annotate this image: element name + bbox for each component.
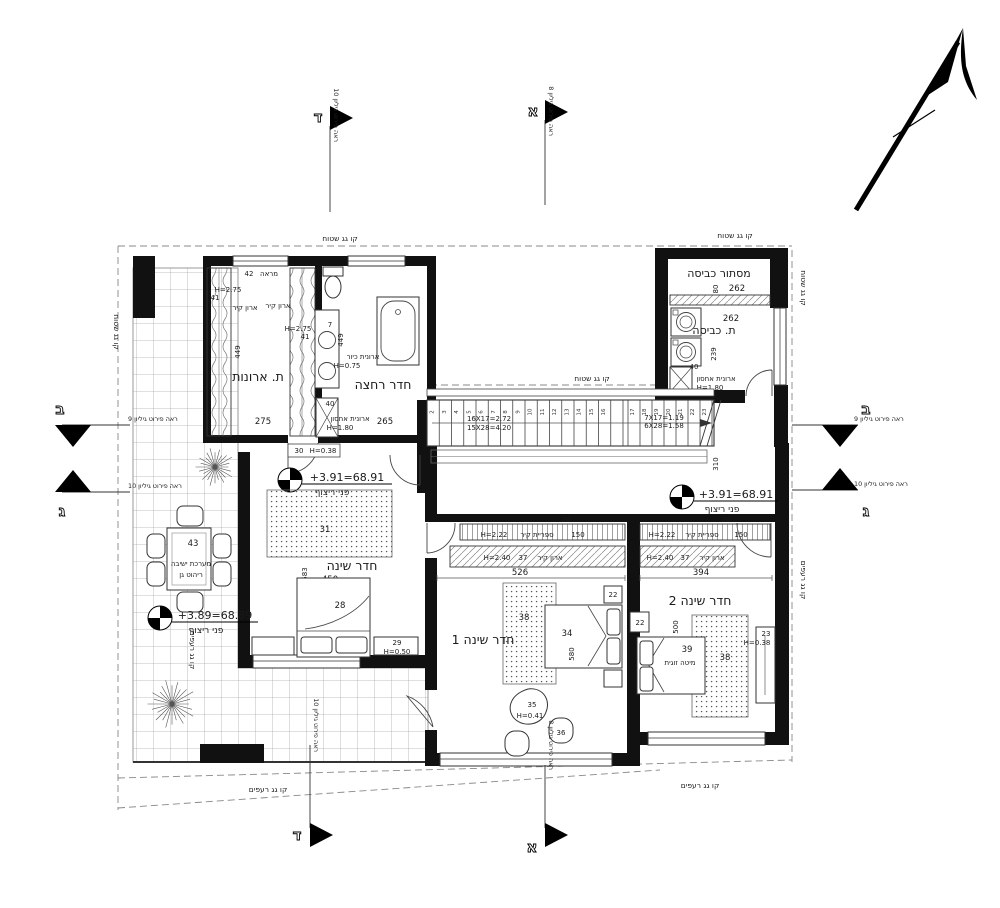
stair-step-number: 11: [540, 409, 546, 416]
bathtub-icon: [377, 297, 419, 365]
rug-number: 38: [519, 613, 530, 623]
closet-depth: 37: [681, 554, 690, 562]
toilet-icon: [323, 267, 343, 298]
room-name-master: חדר שינה: [327, 558, 378, 573]
storage-height: H=1.80: [327, 424, 354, 432]
section-letter: ג: [863, 502, 870, 520]
roof-tile-label: קו גג רעפים: [249, 785, 288, 794]
window: [348, 256, 405, 266]
section-letter: א: [528, 102, 539, 120]
wardrobe-depth: 41: [211, 294, 220, 302]
dim-265: 265: [377, 417, 393, 427]
bed-type-label: מיטה זוגית: [664, 659, 695, 667]
section-letter: ד: [314, 108, 323, 126]
cabinet-width: 30: [295, 447, 304, 455]
chair: [505, 731, 529, 756]
stair-step-number: 13: [564, 408, 570, 415]
wardrobe-height: H=2.75: [285, 325, 312, 333]
section-letter: ד: [293, 826, 302, 844]
dim-394: 394: [693, 568, 709, 578]
mirror-label: מראה: [260, 270, 278, 278]
stair-formula: 6X28=1.58: [644, 422, 684, 430]
stair-step-number: 2: [430, 410, 436, 414]
section-letter: א: [527, 838, 538, 856]
stair-step-number: 17: [630, 408, 636, 415]
dim-7: 7: [328, 321, 332, 329]
section-note: ראה פירוט גיליון 8: [547, 86, 555, 136]
section-marker-d-top: ד ראה פירוט גיליון 10: [314, 88, 353, 212]
nightstand-number: 22: [636, 619, 645, 627]
dim-262: 262: [729, 284, 745, 294]
section-letter: ג: [59, 502, 66, 520]
room-name-bedroom1: חדר שינה 1: [452, 632, 515, 647]
shelf-depth: 20: [562, 516, 571, 524]
rug-number: 31: [320, 525, 331, 535]
storage-label: ארונית אחסון: [696, 375, 736, 383]
wardrobe-depth: 41: [301, 333, 310, 341]
bedroom1: H=2.22 ספריית קיר 20 150 H=2.40 37 ארון …: [437, 516, 625, 756]
closet-label: ארון קיר: [537, 554, 562, 562]
elevation-value: +3.89=68.89: [178, 609, 252, 622]
nightstand: [604, 670, 622, 687]
cabinet-height: H=0.38: [310, 447, 337, 455]
elevation-label: פני ריצוף: [189, 626, 224, 636]
stair-step-number: 5: [466, 410, 472, 414]
shelf-length: 150: [734, 531, 747, 539]
door-master: [390, 455, 420, 485]
wardrobe-label: ארון קיר: [232, 304, 257, 312]
elevation-value: +3.91=68.91: [699, 488, 773, 501]
section-note: ראה פירוט גיליון 10: [128, 482, 182, 490]
pouf-height: H=0.41: [517, 712, 544, 720]
planter-wall: [200, 744, 264, 763]
sink-cabinet-label: ארונית כיור: [347, 353, 380, 361]
nightstand-number: 22: [609, 591, 618, 599]
bed-number: 28: [335, 601, 346, 611]
section-note: ראה פירוט גיליון 9: [128, 415, 178, 423]
rug-number: 38: [720, 653, 731, 663]
laundry: מסתור כביסה 80 262 262 ת. כביסה 239 40 א…: [670, 267, 770, 392]
seating-label: מערכת ישיבה: [171, 560, 212, 568]
bedroom2: H=2.22 ספריית קיר 20 150 H=2.40 37 ארון …: [630, 516, 775, 717]
closet-depth: 37: [519, 554, 528, 562]
roof-flat-label: קו גג שטוח: [112, 314, 121, 349]
nightstand: [252, 637, 294, 655]
roof-flat-label: קו גג שטוח: [799, 270, 808, 305]
stair-step-number: 6: [479, 410, 485, 414]
stair-step-number: 4: [454, 410, 460, 414]
dresser-number: 23: [762, 630, 771, 638]
roof-flat-label: קו גג שטוח: [574, 374, 609, 383]
dim-239: 239: [710, 347, 718, 360]
wardrobe-height: H=2.75: [215, 286, 242, 294]
closet-label: ארון קיר: [699, 554, 724, 562]
dresser-height: H=0.38: [744, 639, 771, 647]
section-note: ראה פירוט גיליון 9: [854, 415, 904, 423]
chair-number: 36: [557, 729, 566, 737]
section-marker-b-right: ב ראה פירוט גיליון 9: [792, 400, 904, 447]
stair-step-number: 8: [503, 410, 509, 414]
closet-height: H=2.40: [484, 554, 511, 562]
roof-flat-label: קו גג שטוח: [322, 234, 357, 243]
dim-449: 449: [234, 345, 242, 358]
dim-80: 80: [712, 285, 720, 294]
bed-number: 39: [682, 645, 693, 655]
stair-step-number: 10: [528, 408, 534, 415]
mirror-number: 42: [245, 270, 254, 278]
stair-formula: 16X17=2.72: [467, 415, 511, 423]
bed-icon: [545, 605, 622, 668]
door-laundry: [746, 370, 772, 396]
stair-step-number: 14: [577, 408, 583, 415]
dim-449: 449: [337, 333, 345, 346]
window: [440, 753, 612, 766]
stair-step-number: 16: [601, 408, 607, 415]
table-number: 43: [188, 539, 199, 549]
seating-label: ריהוט גן: [179, 571, 203, 579]
dim-275: 275: [255, 417, 271, 427]
section-marker-a-top: א ראה פירוט גיליון 8: [528, 86, 568, 205]
elevation-marker: +3.91=68.91 פני ריצוף: [670, 485, 778, 515]
dim-40: 40: [326, 400, 335, 408]
shelf-label: ספריית קיר: [685, 531, 719, 539]
room-name-laundry: ת. כביסה: [692, 324, 735, 337]
section-note: ראה פירוט גיליון 10: [854, 480, 908, 488]
room-name-bedroom2: חדר שינה 2: [669, 593, 732, 608]
dim-500: 500: [672, 620, 680, 633]
rug: [267, 490, 392, 557]
roof-tile-label: קו גג רעפים: [799, 561, 808, 600]
elevation-label: פני ריצוף: [705, 505, 740, 515]
elevation-value: +3.91=68.91: [310, 471, 384, 484]
washing-machine-icon: [671, 338, 701, 366]
bed-number: 34: [562, 629, 573, 639]
bathroom: חדר רחצה 7 449 ארונית כיור H=0.75 40 ארו…: [315, 267, 419, 437]
storage-label: ארונית אחסון: [330, 415, 370, 423]
sink-cabinet-height: H=0.75: [334, 362, 361, 370]
section-note: ראה פירוט גיליון 10: [332, 88, 340, 142]
bed-icon: [297, 578, 370, 657]
shelf-height: H=2.22: [481, 531, 508, 539]
room-name-laundry-screen: מסתור כביסה: [687, 267, 751, 280]
window: [233, 256, 288, 266]
window: [648, 732, 765, 745]
stair-step-number: 3: [442, 410, 448, 414]
stair-step-number: 12: [552, 409, 558, 416]
section-letter: ב: [55, 400, 64, 418]
room-name-closets: ת. ארונות: [232, 369, 284, 384]
floor-plan: קו גג שטוח קו גג שטוח קו גג שטוח קו גג ש…: [0, 0, 1000, 908]
dim-526: 526: [512, 568, 528, 578]
section-marker-g-right: ג ראה פירוט גיליון 10: [792, 468, 908, 520]
shelf-depth: 20: [722, 516, 731, 524]
master-bedroom: 31 חדר שינה 583 450 28 29 H=0.50: [252, 490, 418, 657]
closet-height: H=2.40: [647, 554, 674, 562]
stair-step-number: 9: [515, 410, 521, 414]
dim-40: 40: [690, 363, 699, 371]
north-arrow: [856, 28, 977, 210]
bench-number: 29: [393, 639, 402, 647]
room-name-bathroom: חדר רחצה: [355, 377, 412, 392]
wardrobe-label: ארון קיר: [265, 302, 290, 310]
dim-262: 262: [723, 314, 739, 324]
stair-formula: 7X17=1.19: [644, 414, 684, 422]
stair-step-number: 7: [491, 410, 497, 414]
bench-height: H=0.50: [384, 648, 411, 656]
roof-flat-label: קו גג שטוח: [717, 231, 752, 240]
dim-310: 310: [712, 457, 720, 470]
stair-step-number: 15: [589, 408, 595, 415]
roof-tile-label: קו גג רעפים: [681, 781, 720, 790]
window: [774, 308, 786, 385]
shelf-label: ספריית קיר: [520, 531, 554, 539]
louver-vent: [670, 295, 770, 305]
stair-formula: 15X28=4.20: [467, 424, 511, 432]
dim-580: 580: [568, 647, 576, 660]
shelf-length: 150: [571, 531, 584, 539]
staircase: 2345678910111213141516 17181920212223 16…: [427, 389, 721, 471]
section-note: ראה פירוט גיליון 10: [312, 698, 320, 752]
stair-step-number: 22: [690, 409, 696, 416]
shelf-height: H=2.22: [649, 531, 676, 539]
section-note: ראה פירוט גיליון 8: [547, 720, 555, 770]
pouf-number: 35: [528, 701, 537, 709]
stair-step-number: 23: [702, 408, 708, 415]
